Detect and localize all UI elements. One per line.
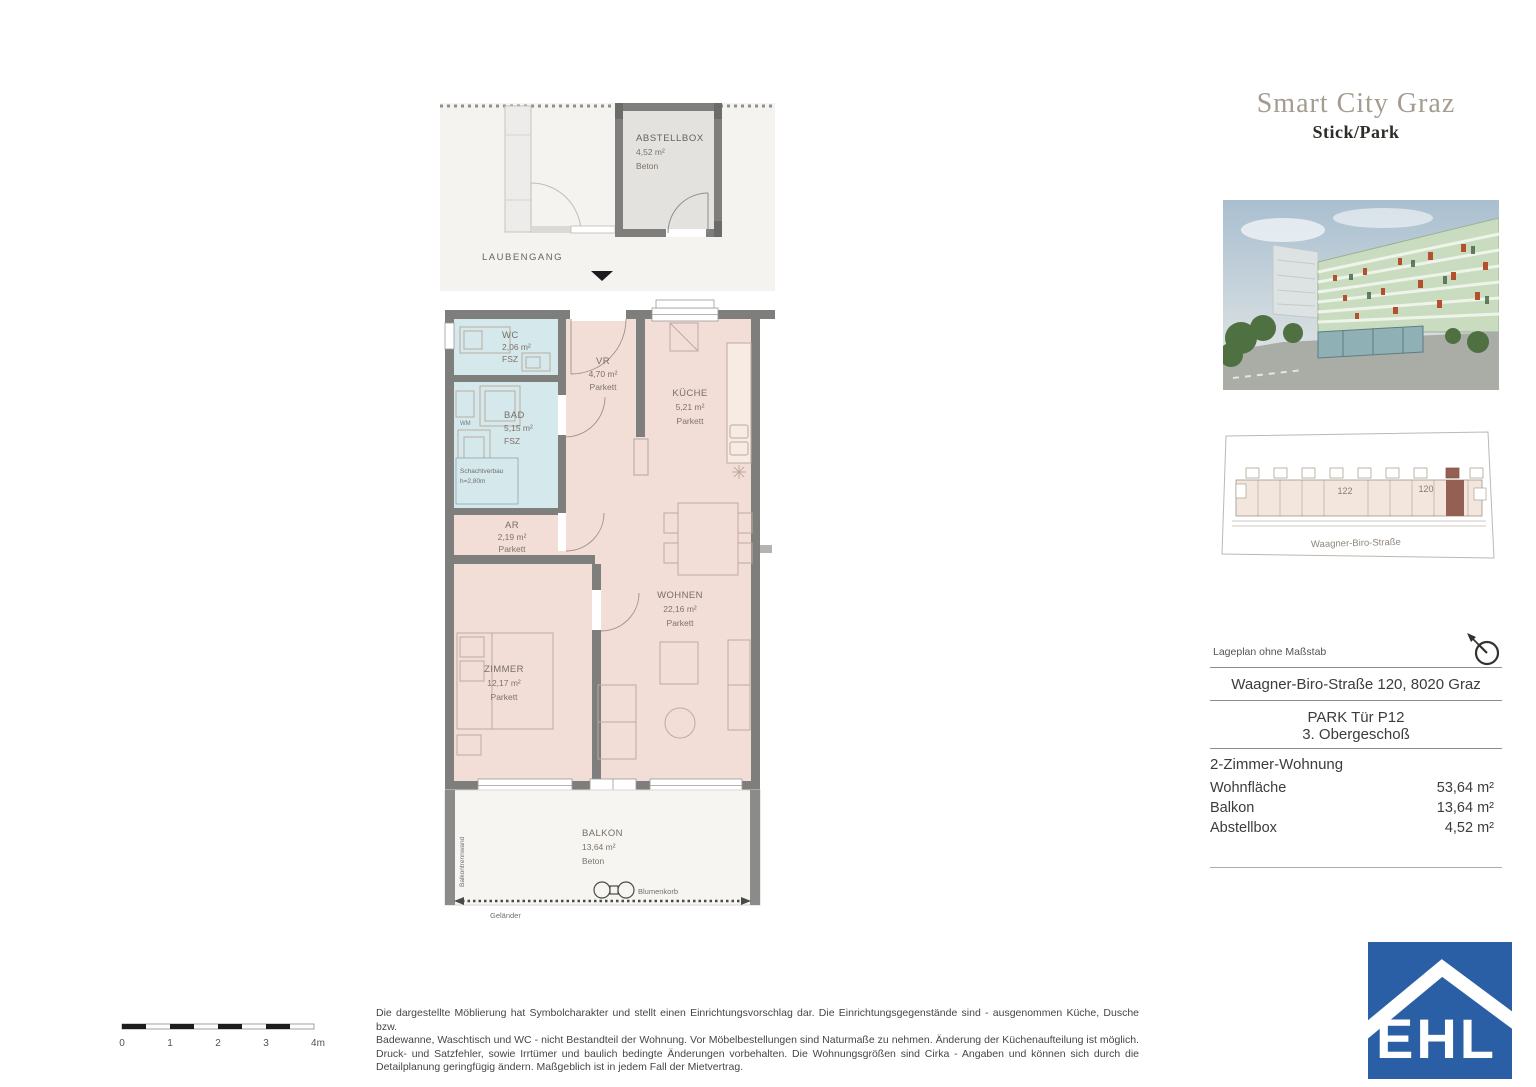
room-label-zimmer-floor: Parkett [491, 692, 519, 702]
room-label-bad-floor: FSZ [504, 436, 520, 446]
project-header: Smart City Graz Stick/Park [1210, 88, 1502, 143]
project-subtitle: Stick/Park [1210, 122, 1502, 143]
scale-tick-4: 4m [311, 1038, 325, 1049]
site-plan: 122 120 Waagner-Biro-Straße [1218, 428, 1500, 568]
room-label-kueche-area: 5,21 m² [676, 402, 705, 412]
room-label-wc-area: 2,06 m² [502, 342, 531, 352]
metric-value: 53,64 m² [1437, 780, 1494, 796]
stair-core [505, 106, 531, 232]
room-label-ar-area: 2,19 m² [498, 532, 527, 542]
divider [1210, 700, 1502, 701]
disclaimer-line: Badewanne, Waschtisch und WC - nicht Bes… [376, 1034, 1139, 1048]
room-label-zimmer-area: 12,17 m² [487, 678, 521, 688]
metric-row: Abstellbox 4,52 m² [1210, 820, 1494, 836]
ehl-logo: EHL [1368, 942, 1512, 1079]
siteplan-note: Lageplan ohne Maßstab [1213, 646, 1326, 658]
project-title: Smart City Graz [1210, 88, 1502, 120]
page: ABSTELLBOX 4,52 m² Beton LAUBENGANG [0, 0, 1536, 1087]
room-label-kueche-floor: Parkett [677, 416, 705, 426]
room-label-balkon-floor: Beton [582, 856, 604, 866]
metric-label: Abstellbox [1210, 820, 1277, 836]
metric-row: Wohnfläche 53,64 m² [1210, 780, 1494, 796]
blumenkorb-label: Blumenkorb [638, 887, 678, 896]
storefront [1318, 326, 1423, 358]
metric-label: Wohnfläche [1210, 780, 1286, 796]
scale-bar: 0 1 2 3 4m [118, 1020, 338, 1054]
metric-row: Balkon 13,64 m² [1210, 800, 1494, 816]
room-label-vr-floor: Parkett [590, 382, 618, 392]
disclaimer-line: Druck- und Satzfehler, sowie Irrtümer un… [376, 1048, 1139, 1062]
room-abstellbox: ABSTELLBOX 4,52 m² Beton [615, 103, 722, 237]
scale-tick-1: 1 [167, 1038, 173, 1049]
room-label-wc-floor: FSZ [502, 354, 518, 364]
room-label-wc-name: WC [502, 330, 519, 341]
bad-note-line1: Schachtverbau [460, 468, 504, 475]
metric-value: 4,52 m² [1445, 820, 1494, 836]
room-label-balkon-area: 13,64 m² [582, 842, 616, 852]
laubengang-label: LAUBENGANG [482, 252, 563, 263]
room-label-ar-name: AR [505, 520, 519, 531]
divider [1210, 667, 1502, 668]
room-label-zimmer-name: ZIMMER [484, 664, 524, 675]
room-label-bad-area: 5,15 m² [504, 423, 533, 433]
site-number-122: 122 [1337, 486, 1352, 496]
kitchen-window [652, 300, 718, 321]
room-label-vr-name: VR [596, 356, 610, 367]
building-photo [1223, 200, 1499, 390]
address: Waagner-Biro-Straße 120, 8020 Graz [1210, 676, 1502, 693]
metric-label: Balkon [1210, 800, 1254, 816]
balcony-zone: Balkontrennwand BALKON 13,64 m² Beton Bl… [445, 790, 760, 920]
north-arrow-icon [1456, 630, 1504, 670]
room-label-bad-name: BAD [504, 410, 525, 421]
gelaender-label: Geländer [490, 911, 521, 920]
bad-note: Schachtverbau h=2,80m [456, 458, 518, 504]
floor-plan: ABSTELLBOX 4,52 m² Beton LAUBENGANG [440, 95, 780, 925]
disclaimer-line: Detailplanung geringfügig ändern. Maßgeb… [376, 1061, 1139, 1075]
site-number-120: 120 [1418, 484, 1433, 494]
room-label-kueche-name: KÜCHE [672, 388, 707, 399]
metric-value: 13,64 m² [1437, 800, 1494, 816]
room-label-wohnen-name: WOHNEN [657, 590, 703, 601]
divider [1210, 748, 1502, 749]
scale-tick-2: 2 [215, 1038, 221, 1049]
scale-tick-0: 0 [119, 1038, 125, 1049]
room-label-abstellbox-name: ABSTELLBOX [636, 133, 704, 144]
room-label-balkon-name: BALKON [582, 828, 623, 839]
apartment-type: 2-Zimmer-Wohnung [1210, 756, 1502, 773]
scale-tick-3: 3 [263, 1038, 269, 1049]
shaft-window [445, 323, 454, 349]
laubengang-zone: ABSTELLBOX 4,52 m² Beton LAUBENGANG [440, 103, 775, 291]
highlighted-unit [1446, 480, 1464, 516]
entrance-door-opening [570, 308, 626, 321]
divider [1210, 867, 1502, 868]
bad-note-line2: h=2,80m [460, 478, 485, 485]
street-label: Waagner-Biro-Straße [1311, 537, 1401, 550]
ehl-logo-text: EHL [1376, 1007, 1497, 1070]
room-label-abstellbox-area: 4,52 m² [636, 147, 665, 157]
background-tower [1273, 245, 1318, 318]
room-label-vr-area: 4,70 m² [589, 369, 618, 379]
disclaimer-line: Die dargestellte Möblierung hat Symbolch… [376, 1007, 1139, 1034]
room-label-wohnen-area: 22,16 m² [663, 604, 697, 614]
trennwand-label: Balkontrennwand [459, 836, 466, 887]
wm-label: WM [460, 421, 471, 427]
apartment-block: Schachtverbau h=2,80m WM WC 2,06 m² FSZ … [445, 300, 775, 800]
room-label-abstellbox-floor: Beton [636, 161, 658, 171]
disclaimer: Die dargestellte Möblierung hat Symbolch… [376, 1007, 1139, 1075]
unit-door: PARK Tür P12 [1210, 709, 1502, 726]
room-label-wohnen-floor: Parkett [667, 618, 695, 628]
room-label-ar-floor: Parkett [499, 544, 527, 554]
unit-floor: 3. Obergeschoß [1210, 726, 1502, 743]
